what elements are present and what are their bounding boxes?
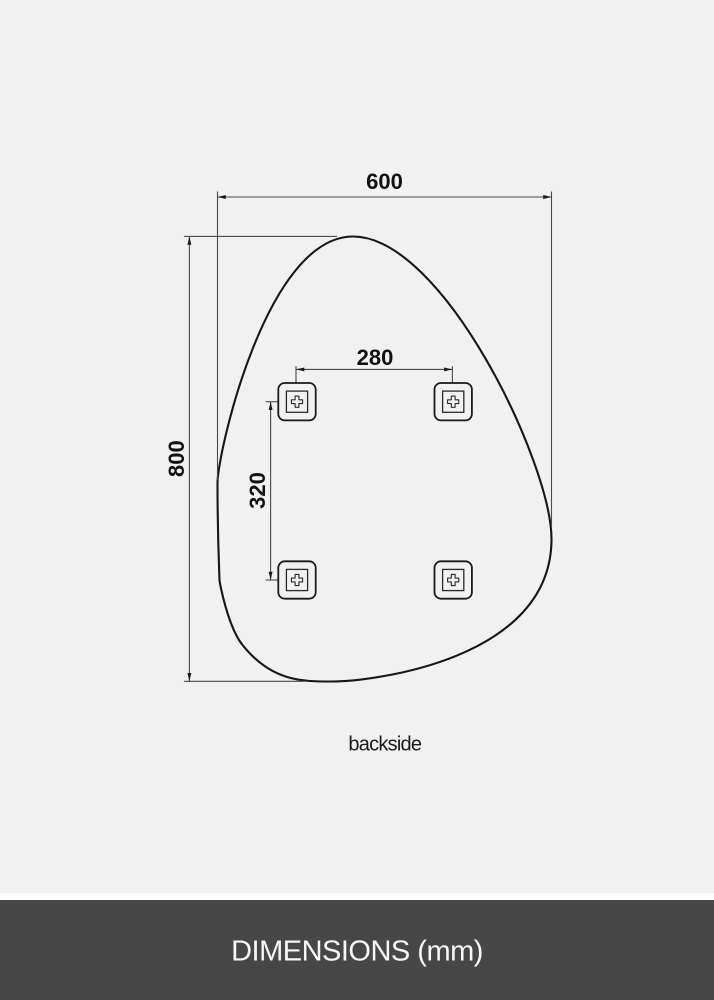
svg-text:backside: backside (348, 734, 422, 756)
svg-text:DIMENSIONS (mm): DIMENSIONS (mm) (231, 936, 483, 968)
svg-text:320: 320 (245, 472, 270, 509)
svg-text:600: 600 (366, 169, 403, 194)
svg-text:800: 800 (164, 440, 189, 477)
svg-text:280: 280 (357, 345, 394, 370)
